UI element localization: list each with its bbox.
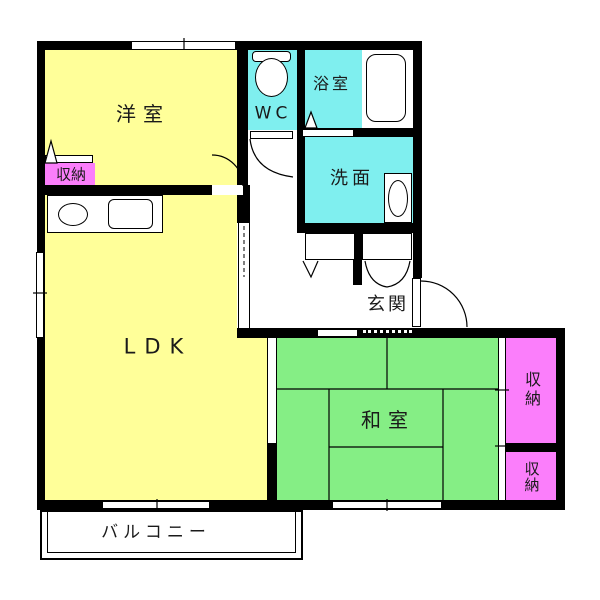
genkan-step xyxy=(363,330,412,333)
window-ldk-left xyxy=(36,252,44,338)
wall-wc-bath xyxy=(297,41,305,137)
entry-door-arc xyxy=(421,281,467,327)
wall-wash-bottom xyxy=(297,223,422,233)
label-closet-west: 収納 xyxy=(56,168,86,183)
shoe-closet xyxy=(362,233,412,260)
wc-door-leaf xyxy=(250,131,293,139)
wall-closet-divider xyxy=(498,443,557,452)
wall-hall-wash xyxy=(297,128,305,233)
label-balcony: バルコニー xyxy=(101,525,211,542)
stove-icon xyxy=(108,199,153,229)
window-youshitsu-top xyxy=(131,41,236,50)
window-ldk-bottom xyxy=(102,501,210,509)
wall-right-lower xyxy=(556,328,565,510)
label-ldk: LDK xyxy=(124,337,193,358)
kitchen-counter xyxy=(47,195,163,233)
label-genkan: 玄関 xyxy=(367,296,409,314)
wall-right-upper xyxy=(413,41,422,278)
youshitsu-door-opening xyxy=(212,185,243,195)
floor-plan: 洋室 収納 WC 浴室 洗面 玄関 LDK 和室 収納 収納 バルコニー xyxy=(0,0,600,600)
sliding-door-hall-washitsu xyxy=(317,329,358,337)
label-closet-right-bottom: 収納 xyxy=(524,461,539,493)
toilet-icon xyxy=(252,51,292,97)
label-wash: 洗面 xyxy=(330,170,374,188)
label-closet-right-top: 収納 xyxy=(523,371,539,409)
sliding-door-ldk-washitsu xyxy=(267,338,277,443)
wall-youshitsu-wc xyxy=(237,41,248,188)
wc-door-arc xyxy=(250,139,293,177)
shoe-closet-door-marker-left xyxy=(365,261,387,287)
label-wc: WC xyxy=(255,106,292,123)
wall-ldk-washitsu xyxy=(267,443,277,503)
linen-closet xyxy=(305,233,355,260)
entry-door-leaf xyxy=(412,278,421,327)
bathtub-icon xyxy=(366,54,406,122)
room-ldk-extension xyxy=(237,338,268,500)
label-bath: 浴室 xyxy=(313,76,351,92)
shoe-closet-door-marker-right xyxy=(387,261,410,287)
window-washitsu-bottom xyxy=(332,501,442,509)
kitchen-sink-icon xyxy=(58,203,88,226)
linen-closet-door-marker xyxy=(303,261,318,277)
sliding-door-hall-ldk xyxy=(238,223,250,328)
washbasin-icon xyxy=(384,173,412,223)
sliding-door-bath xyxy=(302,129,354,137)
label-washitsu: 和室 xyxy=(361,410,415,430)
sliding-door-closet-west xyxy=(45,155,93,163)
sliding-door-washitsu-closets xyxy=(498,338,506,500)
label-youshitsu: 洋室 xyxy=(116,104,170,124)
